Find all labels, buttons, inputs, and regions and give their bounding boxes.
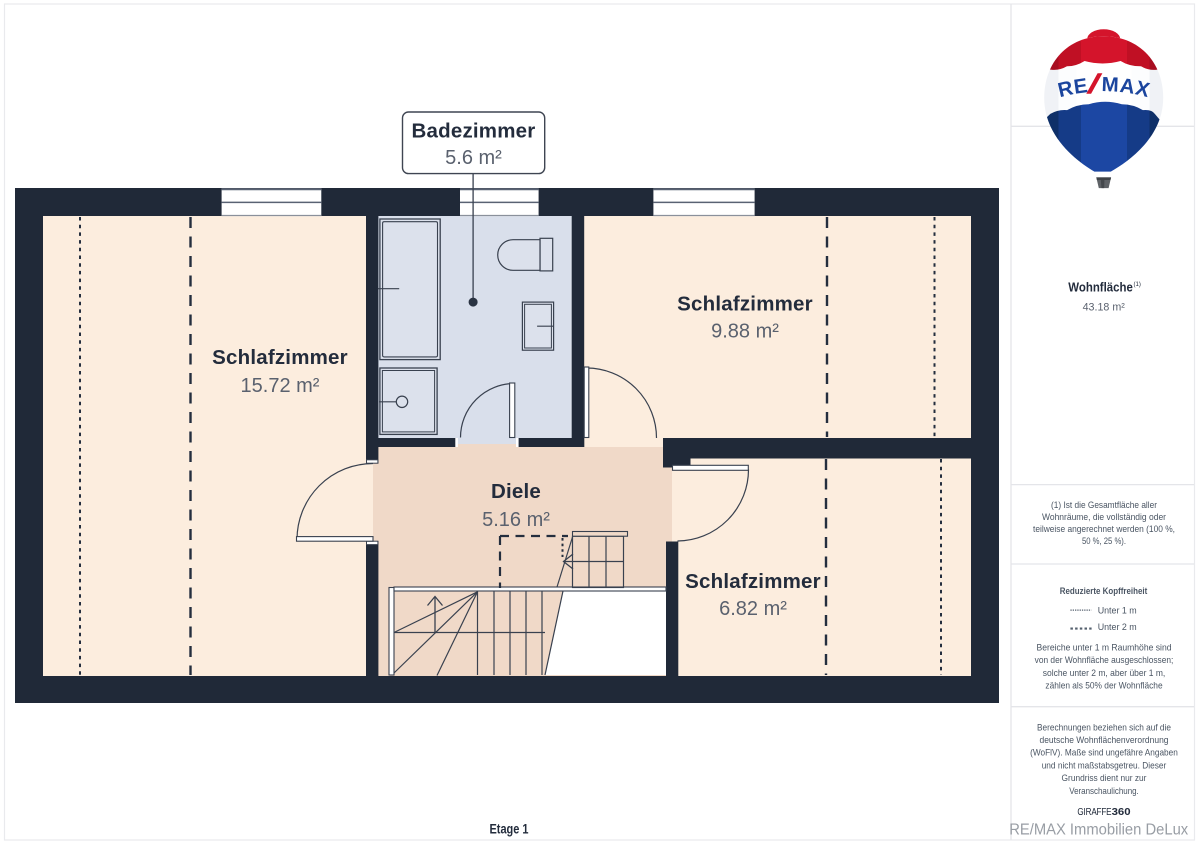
svg-text:von der Wohnfläche ausgeschlos: von der Wohnfläche ausgeschlossen; xyxy=(1035,654,1174,665)
svg-text:43.18 m²: 43.18 m² xyxy=(1083,302,1126,314)
svg-text:Badezimmer: Badezimmer xyxy=(412,120,536,143)
svg-text:teilweise angerechnet werden (: teilweise angerechnet werden (100 %, xyxy=(1033,523,1175,534)
svg-text:Reduzierte Kopffreiheit: Reduzierte Kopffreiheit xyxy=(1060,586,1148,596)
svg-text:(WoFlV). Maße sind ungefähre A: (WoFlV). Maße sind ungefähre Angaben xyxy=(1030,747,1178,758)
svg-text:Unter 1 m: Unter 1 m xyxy=(1098,604,1137,615)
svg-text:Berechnungen beziehen sich auf: Berechnungen beziehen sich auf die xyxy=(1037,721,1171,732)
svg-text:360: 360 xyxy=(1112,807,1131,818)
svg-text:Bereiche unter 1 m Raumhöhe si: Bereiche unter 1 m Raumhöhe sind xyxy=(1037,642,1172,653)
svg-text:Unter 2 m: Unter 2 m xyxy=(1098,621,1137,632)
svg-text:solche unter 2 m, aber über 1: solche unter 2 m, aber über 1 m, xyxy=(1043,667,1166,678)
svg-text:(1) Ist die Gesamtfläche aller: (1) Ist die Gesamtfläche aller xyxy=(1051,499,1157,510)
svg-text:9.88 m²: 9.88 m² xyxy=(711,321,779,343)
svg-text:GIRAFFE: GIRAFFE xyxy=(1077,807,1111,818)
svg-text:zählen als 50% der Wohnfläche: zählen als 50% der Wohnfläche xyxy=(1045,680,1162,691)
svg-text:(1): (1) xyxy=(1134,282,1141,288)
svg-text:Wohnräume, die vollständig ode: Wohnräume, die vollständig oder xyxy=(1042,511,1166,522)
svg-text:5.16 m²: 5.16 m² xyxy=(482,509,550,531)
svg-text:Wohnfläche: Wohnfläche xyxy=(1068,281,1133,295)
svg-text:50 %, 25 %).: 50 %, 25 %). xyxy=(1082,535,1126,546)
svg-text:RE/MAX Immobilien DeLux: RE/MAX Immobilien DeLux xyxy=(1009,822,1188,839)
svg-text:Grundriss dient nur zur: Grundriss dient nur zur xyxy=(1062,772,1147,783)
svg-text:Schlafzimmer: Schlafzimmer xyxy=(685,570,821,593)
svg-text:Veranschaulichung.: Veranschaulichung. xyxy=(1069,785,1139,796)
svg-text:15.72 m²: 15.72 m² xyxy=(241,375,320,397)
svg-text:deutsche Wohnflächenverordnung: deutsche Wohnflächenverordnung xyxy=(1040,734,1169,745)
svg-text:Diele: Diele xyxy=(491,480,541,503)
svg-text:Schlafzimmer: Schlafzimmer xyxy=(212,346,348,369)
svg-text:6.82 m²: 6.82 m² xyxy=(719,598,787,620)
svg-text:5.6 m²: 5.6 m² xyxy=(445,147,502,169)
svg-text:Etage 1: Etage 1 xyxy=(490,822,529,837)
svg-text:Schlafzimmer: Schlafzimmer xyxy=(677,293,813,316)
svg-text:und nicht maßstabsgetreu. Dies: und nicht maßstabsgetreu. Dieser xyxy=(1042,759,1167,770)
